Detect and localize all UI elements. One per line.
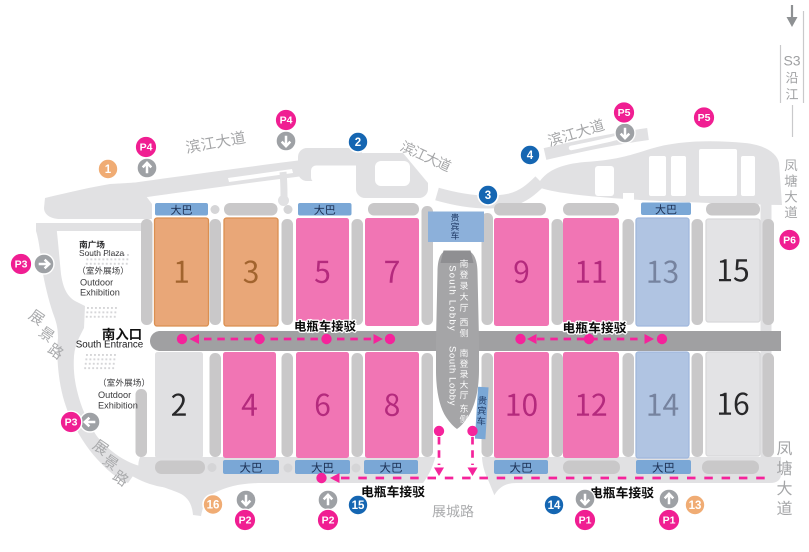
svg-text:Exhibition: Exhibition — [80, 288, 120, 298]
svg-text:3: 3 — [485, 190, 491, 202]
svg-text:P3: P3 — [65, 417, 78, 429]
svg-text:P1: P1 — [663, 515, 676, 527]
svg-text:P4: P4 — [280, 115, 293, 127]
svg-text:South Entrance: South Entrance — [76, 340, 144, 351]
svg-text:15: 15 — [352, 500, 365, 512]
svg-text:Outdoor: Outdoor — [98, 390, 131, 400]
svg-text:P5: P5 — [618, 107, 631, 119]
svg-text:16: 16 — [207, 500, 220, 512]
svg-text:P3: P3 — [15, 259, 28, 271]
svg-text:South Plaza: South Plaza — [79, 248, 125, 258]
svg-text:Exhibition: Exhibition — [98, 401, 138, 411]
svg-text:14: 14 — [548, 500, 561, 512]
svg-text:South Lobby: South Lobby — [447, 346, 458, 406]
svg-text:Outdoor: Outdoor — [80, 278, 113, 288]
svg-text:P4: P4 — [140, 142, 153, 154]
svg-text:S3: S3 — [783, 53, 800, 69]
svg-text:P2: P2 — [239, 515, 252, 527]
svg-text:P5: P5 — [698, 112, 711, 124]
svg-text:P1: P1 — [579, 515, 592, 527]
svg-text:South Lobby: South Lobby — [447, 265, 458, 332]
svg-text:P2: P2 — [322, 515, 335, 527]
svg-text:1: 1 — [105, 164, 112, 176]
svg-text:4: 4 — [527, 150, 534, 162]
svg-text:P6: P6 — [783, 235, 796, 247]
svg-text:13: 13 — [689, 500, 702, 512]
svg-text:2: 2 — [355, 137, 361, 149]
